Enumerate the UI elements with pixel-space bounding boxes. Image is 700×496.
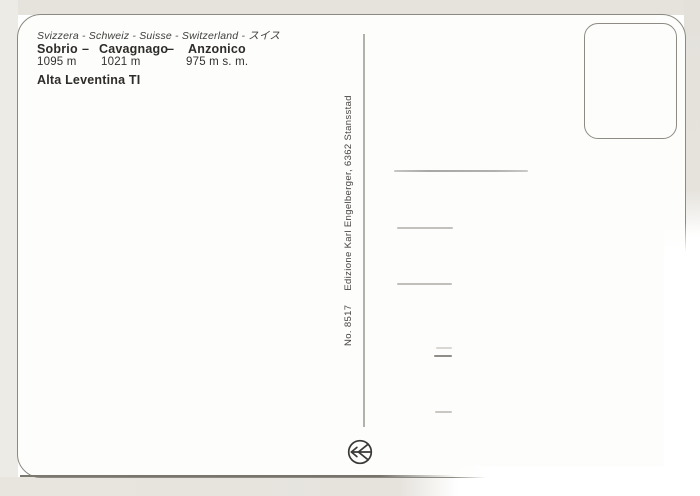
address-line [435, 411, 452, 413]
card-number: No. 8517 [343, 305, 354, 346]
scan-fade-bottom [452, 466, 700, 496]
dash-separator: – [167, 42, 174, 56]
place-name: Cavagnago [99, 42, 168, 56]
karl-engelberger-arrow-k-logo-icon [345, 437, 375, 467]
region-line: Alta Leventina TI [37, 73, 140, 87]
center-divider-line [363, 34, 365, 427]
place-altitude: 1095 m [37, 56, 77, 68]
scan-background-top [0, 0, 700, 15]
scan-fade-right [664, 222, 700, 496]
address-line [397, 227, 453, 229]
address-line [397, 283, 452, 285]
address-line [394, 170, 528, 172]
scan-background-bottom [0, 477, 460, 496]
address-line [436, 347, 452, 349]
card-bottom-edge [20, 475, 456, 477]
scan-background-left [0, 0, 18, 482]
stamp-box [584, 23, 677, 139]
caption-block: Svizzera - Schweiz - Suisse - Switzerlan… [37, 28, 337, 92]
place-altitude: 975 m s. m. [186, 56, 248, 68]
scan-background-right [684, 0, 700, 240]
countries-line: Svizzera - Schweiz - Suisse - Switzerlan… [37, 28, 280, 43]
publisher-edition: Edizione Karl Engelberger, 6362 Stanssta… [343, 95, 354, 291]
place-altitude: 1021 m [101, 56, 141, 68]
address-line [434, 355, 452, 357]
place-name: Anzonico [188, 42, 246, 56]
publisher-imprint-text: No. 8517Edizione Karl Engelberger, 6362 … [343, 95, 354, 346]
dash-separator: – [82, 42, 89, 56]
place-name: Sobrio [37, 42, 78, 56]
postcard-card: Svizzera - Schweiz - Suisse - Switzerlan… [17, 14, 686, 478]
